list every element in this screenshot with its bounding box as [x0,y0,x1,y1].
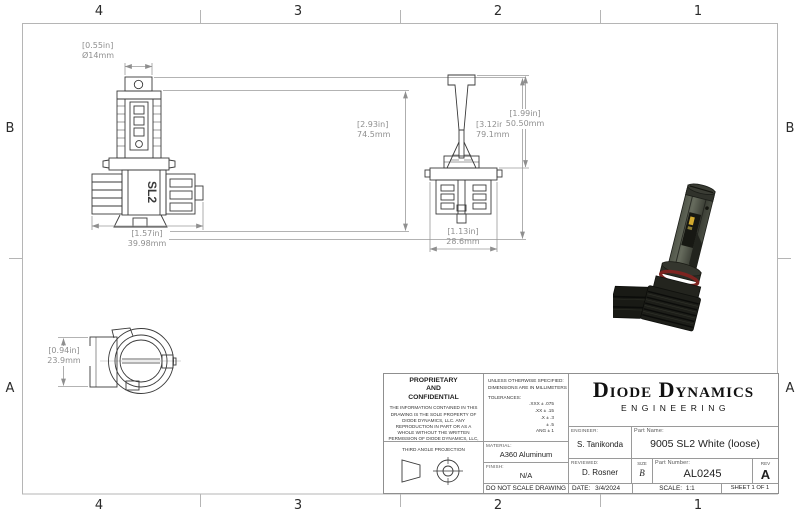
sheet-cell: SHEET 1 OF 1 [722,484,778,493]
reviewed-cell: REVIEWED: D. Rosner [569,459,632,484]
dim-side-base-width: [1.13in] 28.6mm [433,227,493,247]
dim-bottom-side-depth-in: [0.94in] [37,346,91,356]
part-name-cell: Part Name: 9005 SL2 White (loose) [632,427,778,459]
dim-bottom-side-depth: [0.94in] 23.9mm [37,346,91,366]
dim-front-overall-height-mm: 79.1mm [476,130,520,140]
projection-label: THIRD ANGLE PROJECTION [384,447,483,452]
proprietary-line1: PROPRIETARY [384,377,483,385]
engineer-cell: ENGINEER: S. Tanikonda [569,427,632,459]
view-front: SL2 [92,77,203,227]
company-division: ENGINEERING [569,403,778,413]
engineer-label: ENGINEER: [571,428,598,433]
dim-side-base-width-mm: 28.6mm [433,237,493,247]
dim-front-diameter-in: [0.55in] [82,41,138,51]
tolerance-ang: ANG ± 1 [496,428,554,435]
part-name-label: Part Name: [634,428,664,434]
tolerance-x: .X ± .3 [496,415,554,422]
scale-label: SCALE: [659,485,682,492]
rev-cell: REV A [753,459,778,484]
dim-side-upper-height-in: [1.99in] [502,109,548,119]
finish-value: N/A [484,471,568,480]
date-cell: DATE: 3/4/2024 [569,484,633,493]
dim-front-overall-width-mm: 39.98mm [112,239,182,249]
dim-side-base-width-in: [1.13in] [433,227,493,237]
view-bottom [90,328,181,394]
part-number-cell: Part Number: AL0245 [653,459,753,484]
dim-front-body-height-mm: 74.5mm [357,130,405,140]
scale-cell: SCALE: 1:1 [633,484,722,493]
proprietary-cell: PROPRIETARY AND CONFIDENTIAL THE INFORMA… [384,374,484,442]
dim-front-diameter-mm: Ø14mm [82,51,138,61]
dim-front-overall-width-in: [1.57in] [112,229,182,239]
dim-front-diameter: [0.55in] Ø14mm [82,41,138,61]
rev-value: A [753,467,778,482]
dims-note: DIMENSIONS ARE IN MILLIMETERS [484,384,568,391]
projection-cell: THIRD ANGLE PROJECTION [384,442,484,493]
date-label: DATE: [572,485,590,492]
size-value: B [632,468,652,478]
company-name: Diode Dynamics [569,379,778,401]
scale-value: 1:1 [686,485,695,492]
proprietary-line2: AND [384,385,483,393]
tolerance-whole: ± .5 [496,422,554,429]
part-name-value: 9005 SL2 White (loose) [632,438,778,450]
size-label: SIZE [632,461,652,466]
do-not-scale-note: DO NOT SCALE DRAWING [484,484,568,493]
reviewed-label: REVIEWED: [571,460,599,465]
material-cell: MATERIAL: A360 Aluminum [484,442,569,463]
third-angle-projection-icon [392,456,476,486]
view-side [425,75,502,223]
drawing-sheet: 4 3 2 1 4 3 2 1 B A B A [0,0,800,518]
date-value: 3/4/2024 [595,485,620,492]
do-not-scale-cell: DO NOT SCALE DRAWING [484,484,569,493]
material-value: A360 Aluminum [484,450,568,459]
sheet-value: SHEET 1 OF 1 [722,484,778,493]
tolerances-label: TOLERANCES: [484,394,568,401]
front-marking-label: SL2 [145,181,159,203]
proprietary-line3: CONFIDENTIAL [384,394,483,402]
tolerances-cell: UNLESS OTHERWISE SPECIFIED: DIMENSIONS A… [484,374,569,442]
material-label: MATERIAL: [486,443,512,448]
title-block: PROPRIETARY AND CONFIDENTIAL THE INFORMA… [383,373,779,494]
part-number-label: Part Number: [655,460,690,466]
bulb-3d-group [613,178,728,338]
size-cell: SIZE B [632,459,653,484]
finish-label: FINISH: [486,464,504,469]
engineer-value: S. Tanikonda [569,440,631,449]
part-number-value: AL0245 [653,468,752,480]
reviewed-value: D. Rosner [569,468,631,477]
dim-side-upper-height: [1.99in] 50.50mm [502,109,548,129]
dim-front-overall-width: [1.57in] 39.98mm [112,229,182,249]
company-logo-cell: Diode Dynamics ENGINEERING [569,374,778,427]
proprietary-body: THE INFORMATION CONTAINED IN THIS DRAWIN… [384,405,483,442]
view-front-dimensions [92,63,526,240]
bulb-3d-render [613,178,753,343]
dim-front-body-height-in: [2.93in] [357,120,405,130]
finish-cell: FINISH: N/A [484,463,569,484]
dim-side-upper-height-mm: 50.50mm [502,119,548,129]
tolerance-xxx: .XXX ± .075 [496,401,554,408]
tolerance-xx: .XX ± .15 [496,408,554,415]
rev-label: REV [753,461,778,466]
view-side-dimensions [430,76,529,253]
dim-front-body-height: [2.93in] 74.5mm [357,120,405,140]
dim-bottom-side-depth-mm: 23.9mm [37,356,91,366]
unless-note: UNLESS OTHERWISE SPECIFIED: [484,377,568,384]
